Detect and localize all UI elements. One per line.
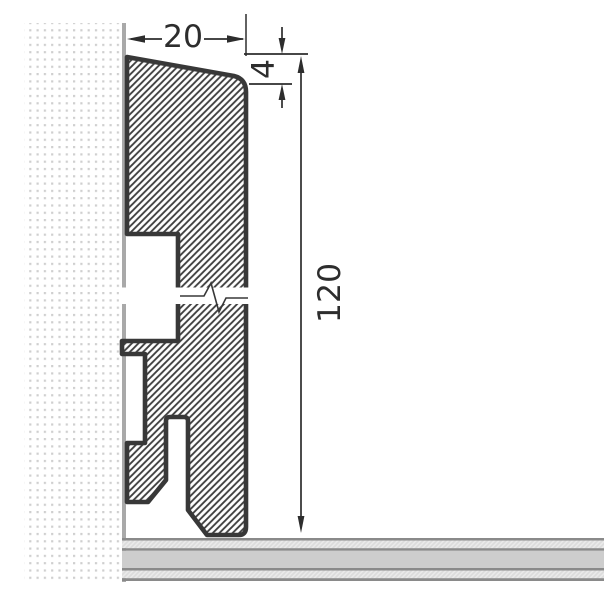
dimension-height-value: 120 bbox=[312, 263, 348, 323]
floor-border-line bbox=[122, 538, 604, 541]
floor-border-line bbox=[122, 568, 604, 571]
technical-drawing-canvas: 20 4 120 bbox=[0, 0, 604, 604]
arrow-up-icon bbox=[298, 56, 305, 73]
arrow-up-icon bbox=[279, 84, 286, 100]
wall-dotted-area bbox=[24, 23, 122, 582]
floor-solid-layer bbox=[122, 551, 604, 568]
dimension-bevel-value: 4 bbox=[246, 59, 282, 79]
skirting-profile-section bbox=[119, 57, 252, 535]
floor-border-line bbox=[122, 548, 604, 551]
dimension-width: 20 bbox=[127, 14, 246, 56]
arrow-left-icon bbox=[127, 35, 145, 43]
dimension-width-value: 20 bbox=[163, 19, 203, 55]
floor-section bbox=[122, 538, 604, 581]
arrow-down-icon bbox=[279, 38, 286, 54]
wall-section bbox=[24, 23, 126, 582]
floor-hatched-layer-bottom bbox=[122, 571, 604, 579]
floor-hatched-layer-top bbox=[122, 541, 604, 549]
arrow-down-icon bbox=[298, 516, 305, 533]
floor-border-line bbox=[122, 578, 604, 581]
skirting-profile-drawing: 20 4 120 bbox=[0, 0, 604, 604]
dimension-bevel: 4 bbox=[244, 27, 308, 108]
dimension-height: 120 bbox=[298, 56, 348, 533]
arrow-right-icon bbox=[227, 35, 245, 43]
